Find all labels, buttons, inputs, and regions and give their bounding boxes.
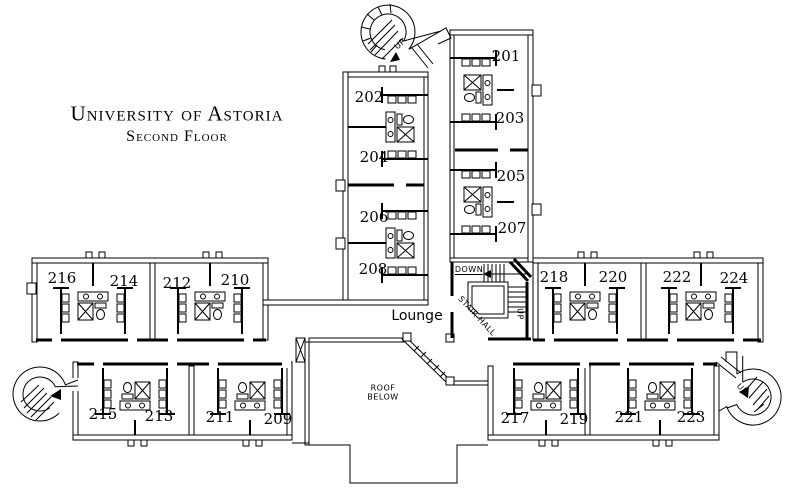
lounge-label: Lounge [391, 308, 442, 324]
room-label-218: 218 [540, 268, 569, 286]
roof-below-label-line1: ROOF [371, 384, 396, 393]
plan-title: University of Astoria [71, 102, 284, 127]
floor-plan-drawing [0, 0, 792, 492]
room-label-207: 207 [498, 219, 527, 237]
room-label-216: 216 [48, 269, 77, 287]
roof-outline [292, 44, 488, 483]
up-label-stair-hall: UP [516, 308, 525, 320]
room-label-223: 223 [677, 408, 706, 426]
room-label-214: 214 [110, 272, 139, 290]
plan-subtitle: Second Floor [126, 128, 228, 146]
room-label-208: 208 [359, 260, 388, 278]
room-label-213: 213 [145, 407, 174, 425]
room-label-212: 212 [163, 274, 192, 292]
room-label-220: 220 [599, 268, 628, 286]
room-label-224: 224 [720, 269, 749, 287]
room-label-205: 205 [497, 167, 526, 185]
room-label-222: 222 [663, 268, 692, 286]
room-label-209: 209 [264, 410, 293, 428]
room-label-201: 201 [492, 47, 521, 65]
floor-plan: University of Astoria Second Floor 201 2… [0, 0, 792, 492]
fire-escape-west [13, 367, 78, 421]
room-label-217: 217 [501, 409, 530, 427]
room-label-210: 210 [221, 271, 250, 289]
roof-below-label-line2: BELOW [367, 393, 398, 402]
down-label: DOWN [455, 265, 483, 275]
room-label-202: 202 [355, 88, 384, 106]
room-label-219: 219 [560, 410, 589, 428]
room-label-204: 204 [360, 148, 389, 166]
room-label-206: 206 [360, 208, 389, 226]
room-label-215: 215 [89, 405, 118, 423]
room-label-221: 221 [615, 408, 644, 426]
room-label-211: 211 [206, 408, 235, 426]
room-label-203: 203 [496, 109, 525, 127]
fire-escape-north [361, 4, 451, 59]
